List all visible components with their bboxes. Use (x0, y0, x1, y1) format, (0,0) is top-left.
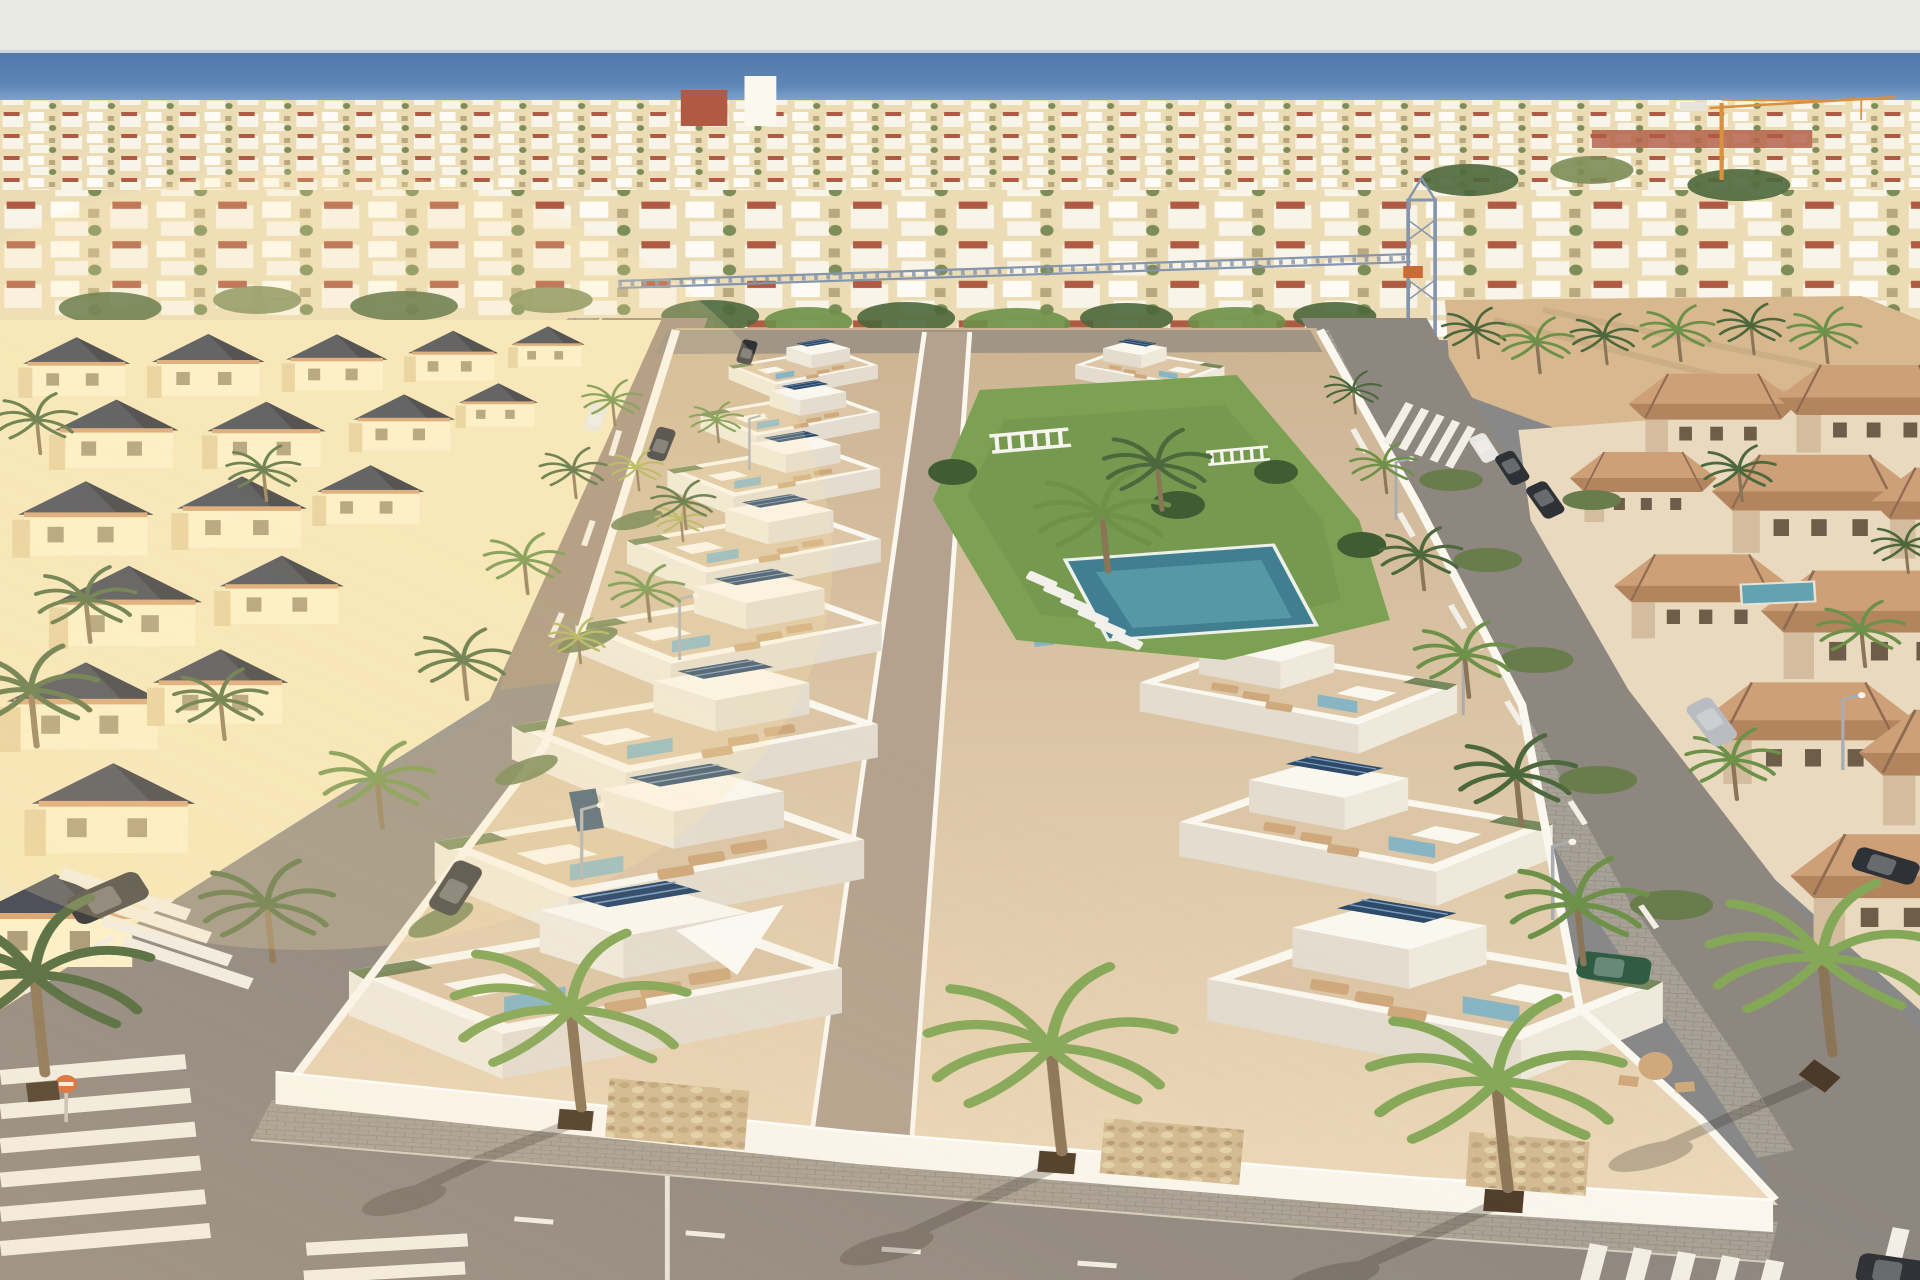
screenshot-root (0, 0, 1920, 1280)
aerial-render (0, 0, 1920, 1280)
light-overlays (0, 0, 1920, 1280)
warm-wash (0, 0, 1920, 1280)
